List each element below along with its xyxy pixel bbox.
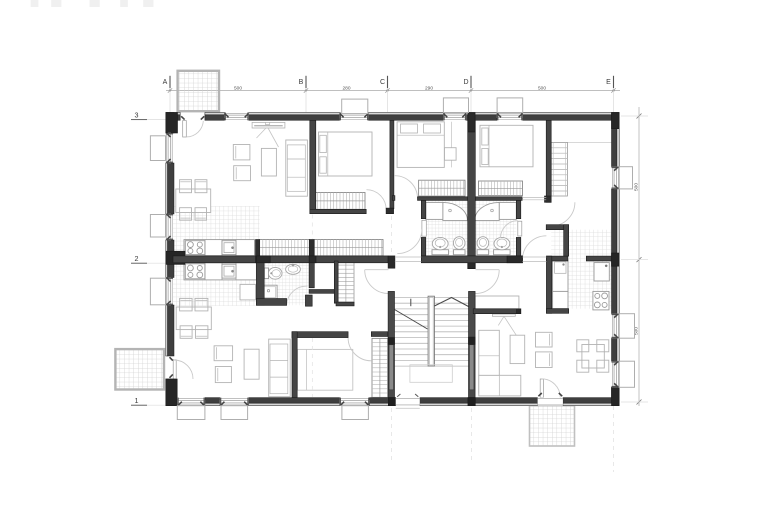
svg-text:1: 1 [135, 396, 139, 405]
svg-text:500: 500 [234, 86, 242, 92]
svg-text:500: 500 [634, 183, 640, 191]
svg-text:E: E [606, 79, 611, 86]
svg-text:2: 2 [135, 254, 139, 263]
svg-text:280: 280 [342, 86, 350, 92]
svg-text:A: A [163, 79, 168, 86]
svg-text:C: C [380, 79, 385, 86]
svg-text:D: D [463, 79, 468, 86]
svg-text:3: 3 [135, 111, 139, 120]
svg-text:290: 290 [425, 86, 433, 92]
svg-text:B: B [299, 79, 304, 86]
svg-text:500: 500 [538, 86, 546, 92]
